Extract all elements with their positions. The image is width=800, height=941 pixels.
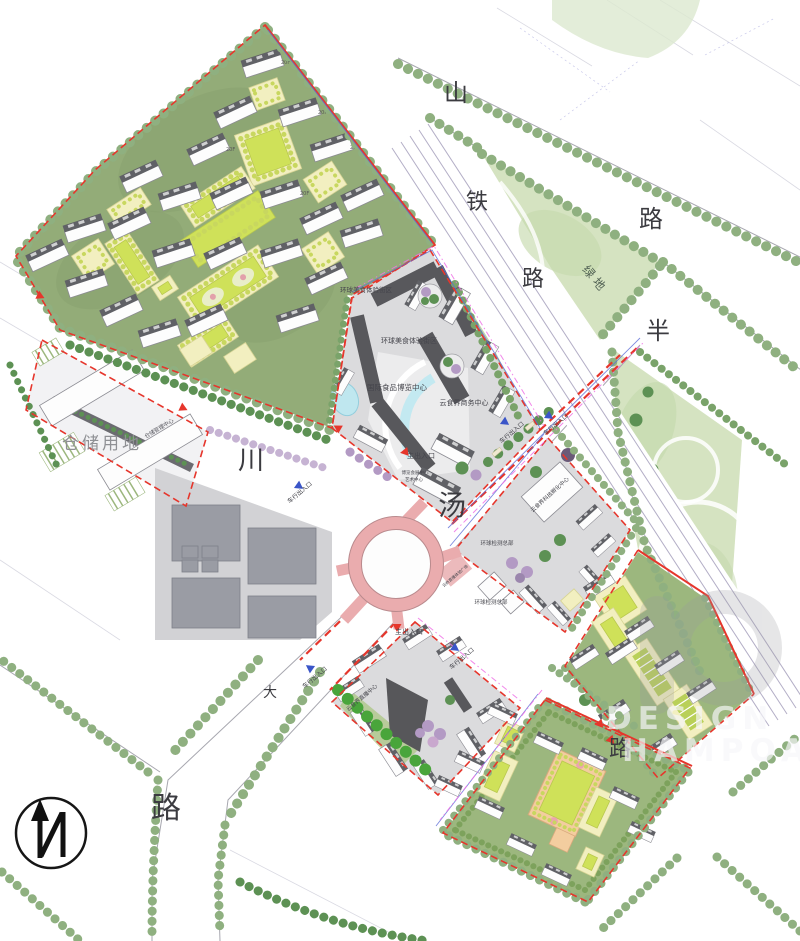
road-label-tang: 汤 (438, 489, 466, 522)
label-expo-hall: 博览会展中心 (402, 469, 429, 476)
floor-tag: 20F (300, 191, 309, 197)
master-plan-canvas: 20F 20F 20F 20F 20F (0, 0, 800, 941)
label-testing-hq-2: 环球检测总部 (474, 598, 508, 606)
parcel-sports-courts (155, 468, 332, 640)
floor-tag: 20F (226, 147, 235, 153)
watermark-line2: HAMPOA (622, 733, 800, 769)
road-label-lu-top: 路 (639, 205, 663, 233)
label-business-center: 云食界商务中心 (440, 398, 489, 407)
road-label-shan: 山 (444, 79, 468, 107)
watermark-line1: DESIGN (606, 701, 774, 737)
label-food-street-2: 环球美食体验街区 (381, 336, 437, 345)
north-arrow (16, 798, 86, 868)
road-label-da: 大 (263, 685, 277, 701)
label-main-entrance-1: 主出入口 (407, 451, 435, 460)
label-food-street-1: 环球美食体验街区 (340, 285, 393, 294)
road-label-tie: 铁 (466, 190, 488, 215)
label-testing-hq-1: 环球检测总部 (480, 539, 514, 547)
road-label-chuan: 川 (238, 446, 264, 476)
road-label-lu-rail: 路 (522, 267, 544, 292)
road-label-lu-sw: 路 (151, 791, 181, 826)
site-plan: 20F 20F 20F 20F 20F (0, 0, 800, 941)
label-warehouse-area: 仓储用地 (62, 434, 142, 454)
label-art-center: 艺术中心 (405, 476, 423, 483)
label-main-entrance-2: 主出入口 (395, 627, 423, 636)
label-expo-center: 国际食品博览中心 (367, 382, 427, 392)
road-label-ban: 半 (646, 317, 670, 345)
